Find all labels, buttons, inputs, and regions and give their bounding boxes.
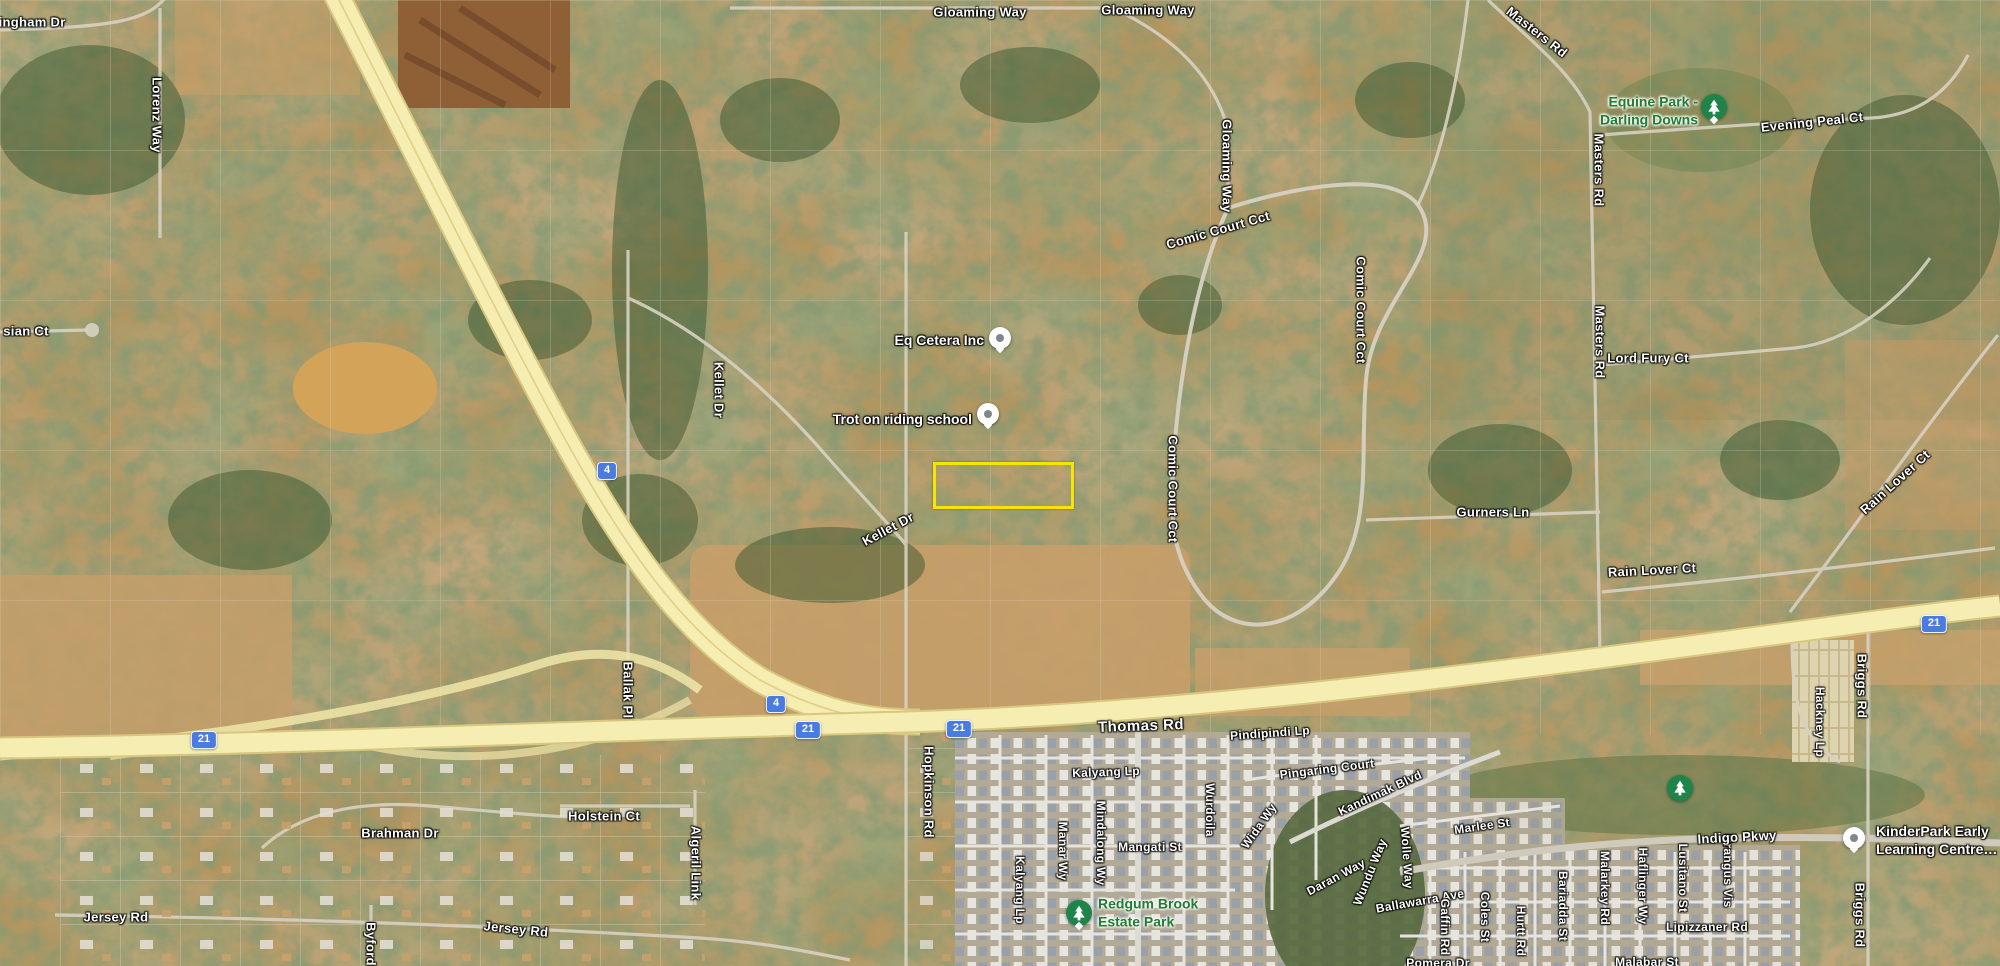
road-label: Indigo Pkwy <box>1697 828 1777 845</box>
poi-label-line: Trot on riding school <box>833 410 972 428</box>
route-shield: 21 <box>1921 615 1947 633</box>
route-shield: 21 <box>946 720 972 738</box>
road-label: Lusitano St <box>1677 844 1689 913</box>
road-label: Haflinger Wy <box>1637 848 1649 925</box>
poi-label[interactable]: Eq Cetera Inc <box>895 331 984 349</box>
park-label-line: Estate Park <box>1098 913 1198 931</box>
road-label: Bariadda St <box>1557 871 1569 941</box>
poi-label-line: KinderPark Early <box>1876 822 1997 840</box>
poi-label[interactable]: KinderPark EarlyLearning Centre… <box>1876 822 1997 858</box>
route-shield: 21 <box>795 721 821 739</box>
road-label: Holstein Ct <box>568 810 640 823</box>
road-label: Hurtt Rd <box>1515 906 1527 956</box>
route-shield: 4 <box>766 695 786 713</box>
road-label: Jersey Rd <box>84 911 149 924</box>
poi-pin[interactable] <box>977 403 999 425</box>
road-label: Gurners Ln <box>1456 506 1529 519</box>
road-label: sian Ct <box>3 325 48 338</box>
road-label: Briggs Rd <box>1854 883 1867 948</box>
road-label: Kalyang Lp <box>1072 765 1140 779</box>
road-label: Comic Court Cct <box>1355 256 1368 363</box>
road-label: Byford <box>365 922 378 966</box>
road-label: Lord Fury Ct <box>1607 352 1689 365</box>
park-label-line: Equine Park - <box>1600 94 1698 112</box>
road-label: Briggs Rd <box>1856 654 1869 719</box>
park-label-line: Darling Downs <box>1600 111 1698 129</box>
park-pin[interactable] <box>1066 900 1092 926</box>
road-label: Kellet Dr <box>713 362 726 418</box>
tree-icon <box>1703 96 1725 118</box>
road-label: Lorenz Way <box>151 77 164 152</box>
road-label: Lipizzaner Rd <box>1666 921 1748 933</box>
road-label: Wurdoila <box>1204 783 1216 837</box>
road-label: Malarkey Rd <box>1599 851 1611 925</box>
road-label: Mindalong Wy <box>1095 801 1107 886</box>
road-label: Thomas Rd <box>1098 717 1185 735</box>
road-label: Malabar St <box>1615 956 1679 966</box>
road-label: Gloaming Way <box>1101 4 1194 17</box>
road-label: Masters Rd <box>1593 133 1606 206</box>
road-label: Masters Rd <box>1594 305 1607 378</box>
road-label: Hackney Lp <box>1814 687 1826 757</box>
road-label: Ballak Pl <box>622 662 635 719</box>
road-label: Hopkinson Rd <box>923 746 936 838</box>
road-label: Mangati St <box>1118 841 1182 853</box>
park-pin[interactable] <box>1701 94 1727 120</box>
poi-label-line: Eq Cetera Inc <box>895 331 984 349</box>
road-label: Algeril Link <box>690 826 703 900</box>
road-label: Gloaming Way <box>1221 119 1234 212</box>
road-label: Gaffin Rd <box>1439 899 1451 956</box>
park-label[interactable]: Equine Park -Darling Downs <box>1600 94 1698 129</box>
park-label-line: Redgum Brook <box>1098 896 1198 914</box>
tree-icon <box>1669 777 1691 799</box>
poi-label-line: Learning Centre… <box>1876 840 1997 858</box>
road-label: Coles St <box>1479 892 1491 942</box>
park-drop-pin[interactable] <box>1667 775 1693 801</box>
satellite-map-viewport[interactable]: ningham DrLorenz WayGloaming WayGloaming… <box>0 0 2000 966</box>
road-label: Pomera Dr <box>1406 957 1469 966</box>
park-label[interactable]: Redgum BrookEstate Park <box>1098 896 1198 931</box>
poi-label[interactable]: Trot on riding school <box>833 410 972 428</box>
road-label: Brangus Vis <box>1722 834 1734 907</box>
road-label: Kalyang Lp <box>1014 856 1026 924</box>
road-label: Brahman Dr <box>361 827 438 840</box>
route-shield: 21 <box>191 731 217 749</box>
poi-pin[interactable] <box>1843 827 1865 849</box>
highlight-parcel <box>933 462 1074 509</box>
route-shield: 4 <box>597 462 617 480</box>
poi-pin[interactable] <box>989 327 1011 349</box>
road-label: Manar Wy <box>1057 822 1069 881</box>
road-label: Comic Court Cct <box>1167 435 1180 542</box>
road-label: ningham Dr <box>0 16 66 29</box>
tree-icon <box>1068 902 1090 924</box>
road-label: Gloaming Way <box>933 6 1026 19</box>
